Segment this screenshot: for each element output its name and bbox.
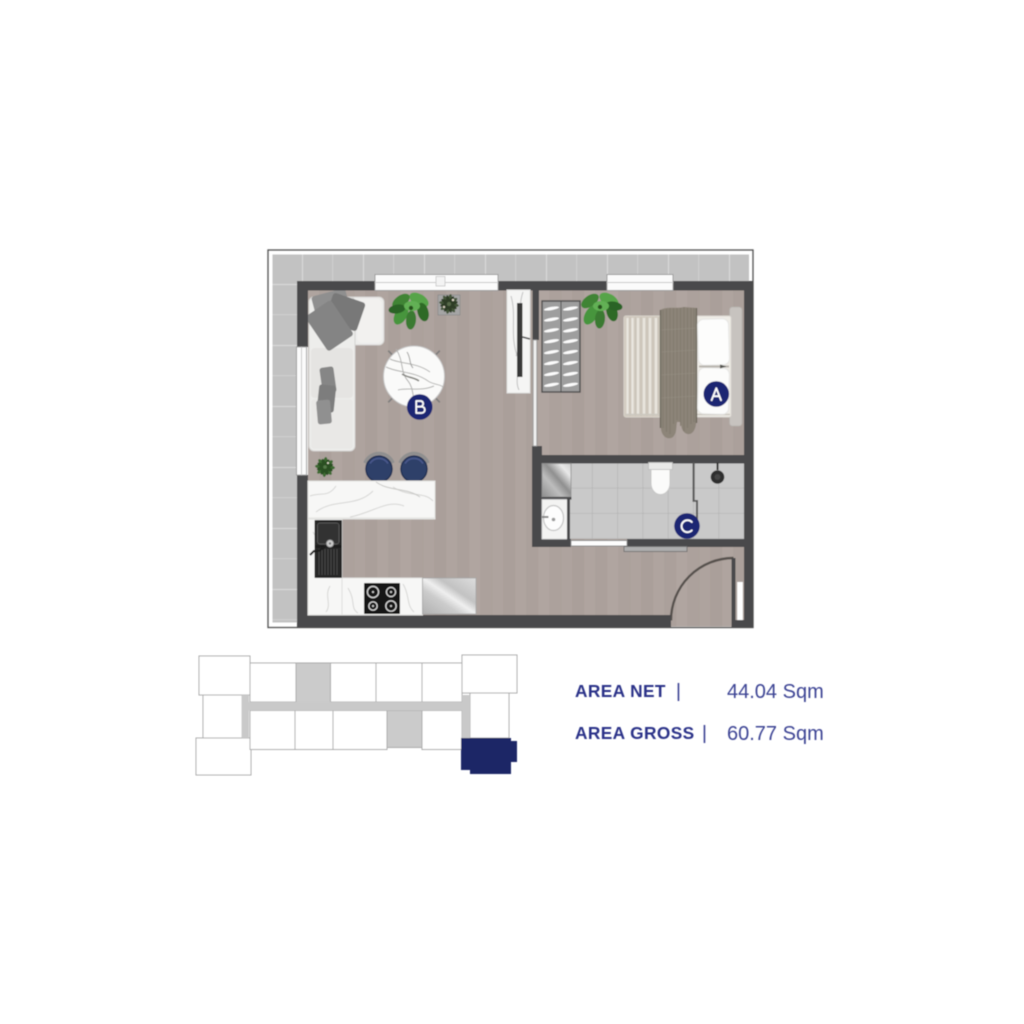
svg-text:AREA NET: AREA NET bbox=[575, 681, 666, 701]
svg-text:AREA GROSS: AREA GROSS bbox=[575, 723, 695, 743]
svg-text:|: | bbox=[702, 723, 707, 744]
svg-text:44.04 Sqm: 44.04 Sqm bbox=[727, 681, 824, 703]
svg-text:60.77 Sqm: 60.77 Sqm bbox=[727, 723, 824, 745]
svg-text:|: | bbox=[676, 681, 681, 702]
